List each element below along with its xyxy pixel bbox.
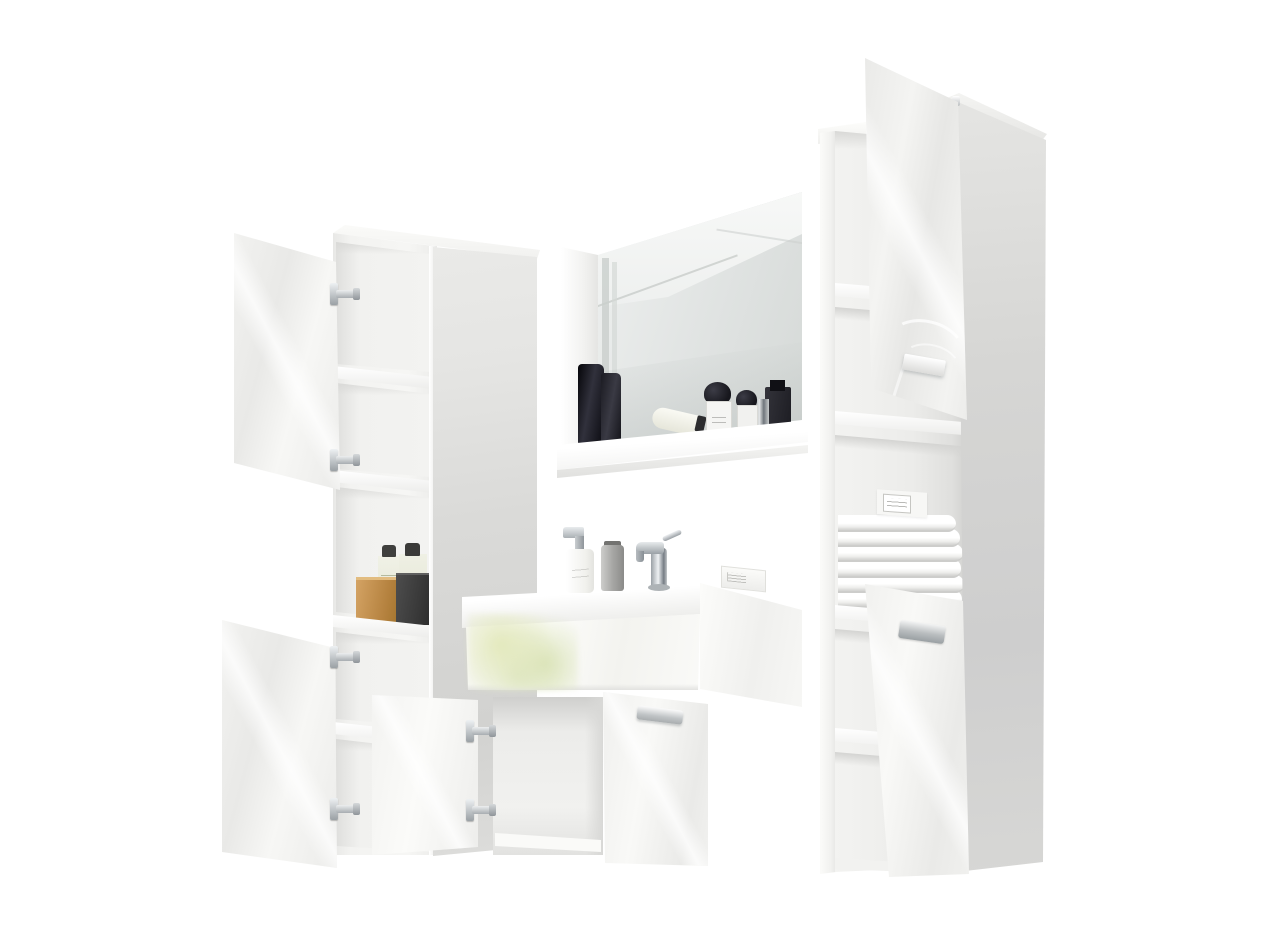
cabinet-side-panel xyxy=(958,94,1047,872)
product-photo-bathroom-set xyxy=(0,0,1267,950)
cabinet-front-stile xyxy=(820,128,836,875)
towel xyxy=(838,515,956,532)
open-door-upper xyxy=(865,58,967,420)
right-tall-cabinet xyxy=(0,0,1267,950)
cosmetic-box xyxy=(877,489,927,517)
box-label xyxy=(883,494,911,514)
